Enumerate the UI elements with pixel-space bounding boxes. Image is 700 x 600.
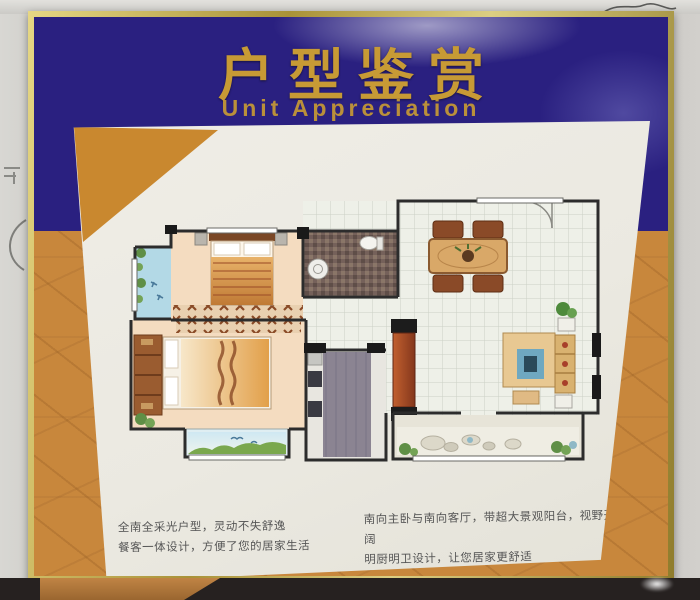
bed-master <box>163 337 271 409</box>
camera-glare <box>640 576 674 592</box>
page-subtitle: Unit Appreciation <box>34 95 668 122</box>
room-kitchen <box>306 350 386 460</box>
display-board-gold-frame: 户型鉴赏 Unit Appreciation <box>28 11 674 582</box>
side-table <box>555 395 572 408</box>
description-left-line2: 餐客一体设计，方便了您的居家生活 <box>118 536 360 559</box>
board-base <box>40 578 220 600</box>
bay-window <box>185 429 289 457</box>
floor-plan-drawing <box>121 187 601 487</box>
dresser-row <box>176 321 301 333</box>
floor-shadow <box>0 578 700 600</box>
wardrobe-row <box>173 305 303 320</box>
side-table <box>558 318 575 331</box>
room-bathroom <box>303 231 398 297</box>
room-master-bedroom <box>131 320 306 429</box>
room-bedroom-2 <box>171 231 303 320</box>
description-left: 全南全采光户型，灵动不失舒逸 餐客一体设计，方便了您的居家生活 <box>118 516 360 559</box>
bed-2 <box>209 231 275 305</box>
sink <box>308 401 322 417</box>
stove <box>308 371 322 387</box>
floor-plan <box>121 187 601 487</box>
balcony-main <box>393 415 583 459</box>
toilet <box>360 237 383 251</box>
balcony-small <box>135 247 171 319</box>
description-right-line1: 南向主卧与南向客厅，带超大景观阳台，视野开阔 <box>363 506 622 550</box>
wardrobe <box>134 335 162 415</box>
description-left-line1: 全南全采光户型，灵动不失舒逸 <box>118 516 360 539</box>
display-board-face: 户型鉴赏 Unit Appreciation <box>34 17 668 576</box>
description-right-line2: 明厨明卫设计，让您居家更舒适 <box>364 546 622 570</box>
footstool <box>513 391 539 404</box>
floorplan-poster: 全南全采光户型，灵动不失舒逸 餐客一体设计，方便了您的居家生活 南向主卧与南向客… <box>72 121 650 576</box>
description-right: 南向主卧与南向客厅，带超大景观阳台，视野开阔 明厨明卫设计，让您居家更舒适 <box>363 506 622 570</box>
tv-cabinet <box>391 319 417 421</box>
